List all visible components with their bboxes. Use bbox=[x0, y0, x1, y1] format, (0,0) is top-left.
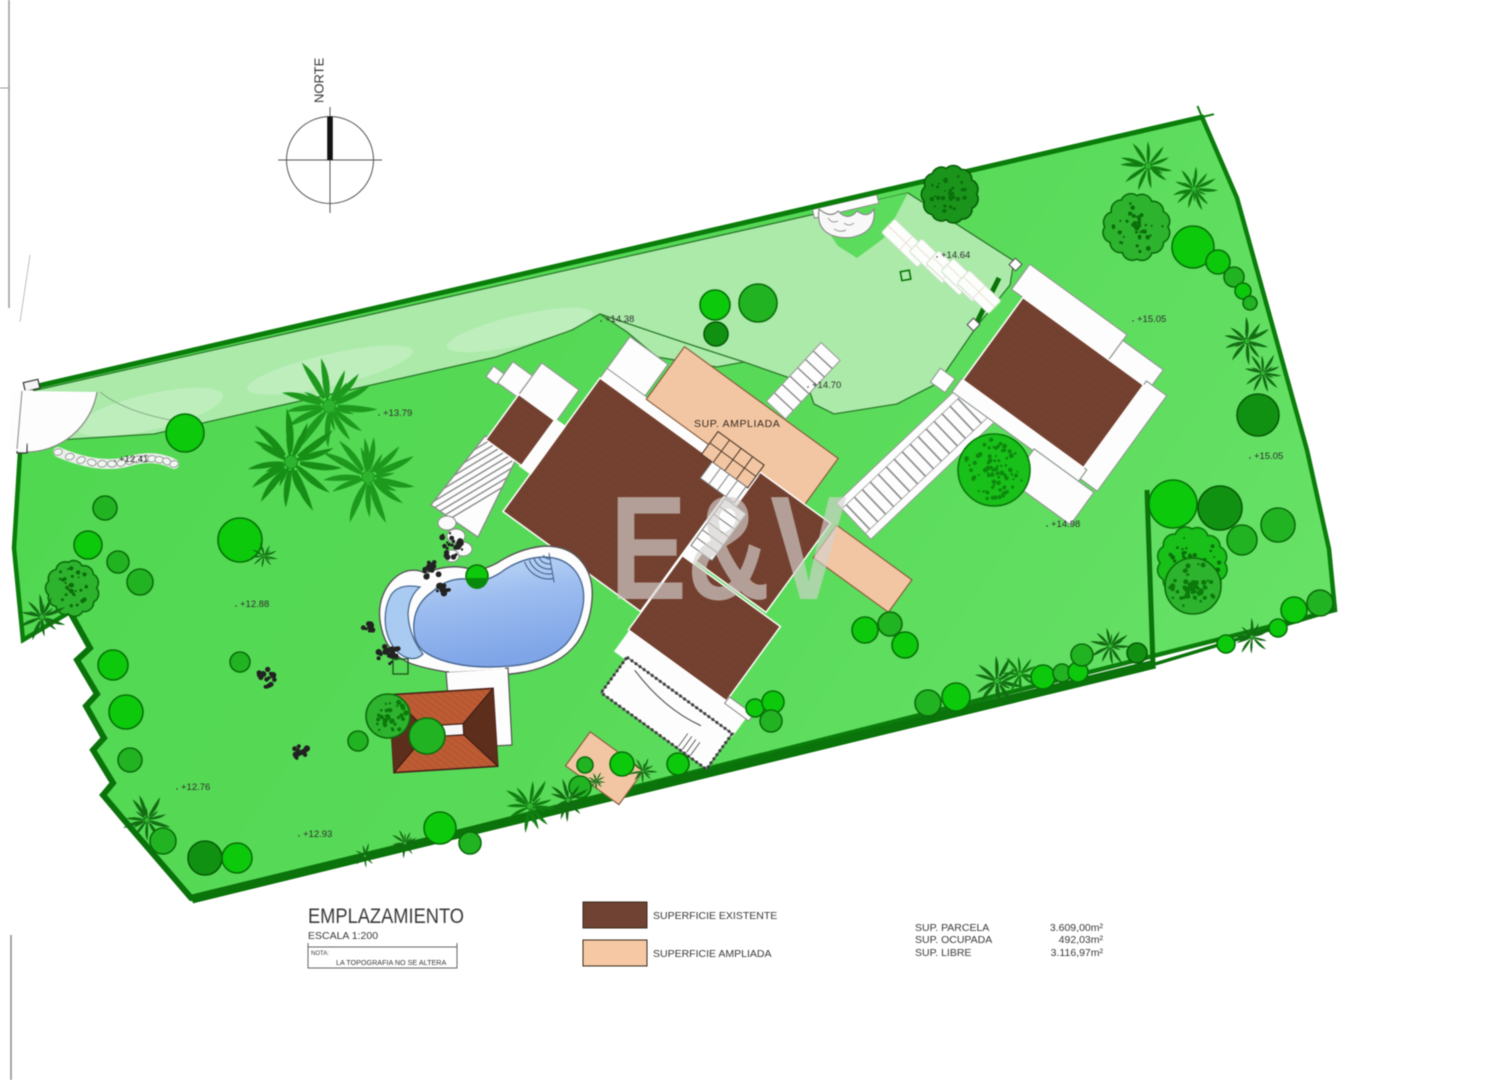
svg-text:EMPLAZAMIENTO: EMPLAZAMIENTO bbox=[308, 905, 464, 928]
svg-text:SUP. LIBRE: SUP. LIBRE bbox=[915, 947, 971, 959]
svg-text:+12.76: +12.76 bbox=[181, 782, 210, 793]
svg-text:LA TOPOGRAFIA NO SE ALTERA: LA TOPOGRAFIA NO SE ALTERA bbox=[336, 958, 446, 967]
svg-text:+15.05: +15.05 bbox=[1254, 451, 1283, 462]
svg-text:+13.79: +13.79 bbox=[383, 408, 412, 419]
svg-text:492,03m²: 492,03m² bbox=[1059, 934, 1104, 946]
svg-text:SUPERFICIE EXISTENTE: SUPERFICIE EXISTENTE bbox=[653, 910, 777, 922]
svg-text:+15.05: +15.05 bbox=[1137, 314, 1166, 325]
svg-text:SUP. PARCELA: SUP. PARCELA bbox=[915, 922, 989, 934]
svg-text:+12.88: +12.88 bbox=[240, 599, 269, 610]
svg-text:+14.38: +14.38 bbox=[605, 314, 634, 325]
svg-text:NOTA:: NOTA: bbox=[311, 951, 329, 957]
svg-text:+14.64: +14.64 bbox=[941, 250, 970, 261]
svg-text:+14.70: +14.70 bbox=[812, 380, 841, 391]
svg-text:SUP. OCUPADA: SUP. OCUPADA bbox=[915, 934, 992, 946]
svg-text:SUPERFICIE AMPLIADA: SUPERFICIE AMPLIADA bbox=[653, 948, 771, 960]
svg-text:+12.41: +12.41 bbox=[119, 454, 148, 465]
svg-text:+12.93: +12.93 bbox=[303, 829, 332, 840]
svg-text:E&V: E&V bbox=[610, 466, 847, 631]
svg-text:NORTE: NORTE bbox=[312, 57, 327, 103]
svg-text:ESCALA 1:200: ESCALA 1:200 bbox=[308, 930, 378, 942]
svg-text:3.116,97m²: 3.116,97m² bbox=[1051, 947, 1104, 959]
svg-text:SUP. AMPLIADA: SUP. AMPLIADA bbox=[694, 418, 780, 430]
svg-text:+14.98: +14.98 bbox=[1051, 519, 1080, 530]
svg-text:3.609,00m²: 3.609,00m² bbox=[1050, 922, 1104, 934]
